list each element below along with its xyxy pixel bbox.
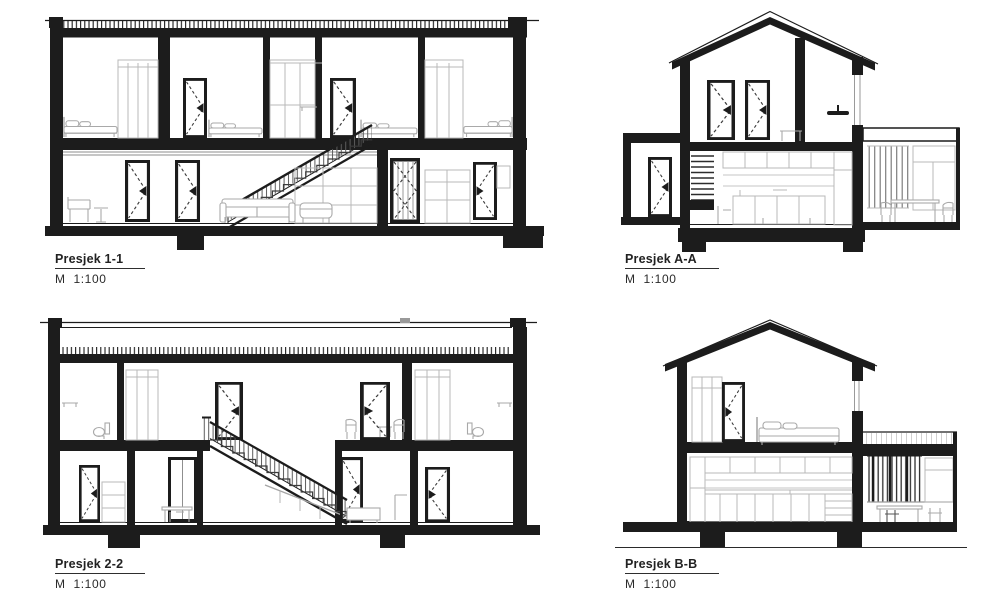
closet-shelves xyxy=(270,60,322,138)
wing-cabinet xyxy=(925,458,953,502)
section-drawing-B-B xyxy=(615,318,975,570)
section-title: Presjek 1-1 xyxy=(55,252,145,269)
drawing-sheet: Presjek 1-1 M 1:100 Presjek A-A M 1:100 … xyxy=(0,0,1000,602)
table-and-chairs xyxy=(881,200,953,222)
upper-floor xyxy=(707,80,849,141)
structure-walls xyxy=(50,28,527,226)
door xyxy=(175,160,200,222)
desk-and-chairs xyxy=(877,506,942,522)
cabinet xyxy=(102,482,125,522)
slat-wall xyxy=(867,456,922,502)
hall-cabinet xyxy=(425,170,470,223)
foundation xyxy=(615,522,967,548)
armchair xyxy=(300,203,332,223)
section-panel-A-A xyxy=(615,10,970,258)
gable-roof xyxy=(669,12,878,71)
slat-wall xyxy=(867,146,909,208)
section-scale: M 1:100 xyxy=(55,574,145,591)
section-panel-1-1 xyxy=(45,10,545,260)
staircase xyxy=(690,156,714,210)
wardrobe xyxy=(415,370,450,440)
shower-head-icon xyxy=(827,105,849,115)
foundation xyxy=(678,228,865,252)
right-wing xyxy=(863,432,957,522)
staircase xyxy=(202,418,347,525)
section-scale: M 1:100 xyxy=(625,269,719,286)
section-drawing-1-1 xyxy=(45,10,545,260)
ground-floor-furniture xyxy=(68,158,510,223)
section-label-A-A: Presjek A-A M 1:100 xyxy=(625,252,719,286)
section-label-2-2: Presjek 2-2 M 1:100 xyxy=(55,557,145,591)
foundation xyxy=(43,525,540,548)
wardrobe xyxy=(126,370,158,440)
roof-window xyxy=(852,75,863,125)
door xyxy=(360,382,390,440)
door xyxy=(745,80,770,140)
sofa xyxy=(220,199,295,223)
section-scale: M 1:100 xyxy=(625,574,719,591)
door xyxy=(125,160,150,222)
door xyxy=(648,157,672,217)
wardrobe xyxy=(692,377,722,442)
door xyxy=(425,467,450,522)
roof-window xyxy=(852,381,863,411)
foundation xyxy=(45,226,544,250)
section-label-1-1: Presjek 1-1 M 1:100 xyxy=(55,252,145,286)
section-title: Presjek B-B xyxy=(625,557,719,574)
door xyxy=(722,382,745,442)
section-label-B-B: Presjek B-B M 1:100 xyxy=(625,557,719,591)
section-panel-B-B xyxy=(615,318,975,570)
upper-floor-furniture xyxy=(64,60,512,138)
section-scale: M 1:100 xyxy=(55,269,145,286)
bed xyxy=(757,417,839,445)
door xyxy=(473,162,497,220)
left-wing xyxy=(621,133,682,225)
section-panel-2-2 xyxy=(40,315,550,567)
right-wing xyxy=(863,128,960,230)
wardrobe xyxy=(118,60,158,138)
glazed-door xyxy=(390,158,420,223)
door xyxy=(183,78,207,138)
door xyxy=(79,465,100,522)
wardrobe xyxy=(425,60,463,138)
door xyxy=(707,80,735,140)
flat-roof xyxy=(40,318,537,363)
kitchen xyxy=(690,457,852,522)
section-title: Presjek A-A xyxy=(625,252,719,269)
section-drawing-A-A xyxy=(615,10,970,258)
section-drawing-2-2 xyxy=(40,315,550,567)
upper-floor xyxy=(692,377,839,445)
gable-roof xyxy=(663,320,877,372)
door xyxy=(330,78,356,138)
section-title: Presjek 2-2 xyxy=(55,557,145,574)
kitchen xyxy=(718,152,852,225)
flat-roof xyxy=(45,17,539,38)
upper-floor-furniture xyxy=(62,370,512,440)
